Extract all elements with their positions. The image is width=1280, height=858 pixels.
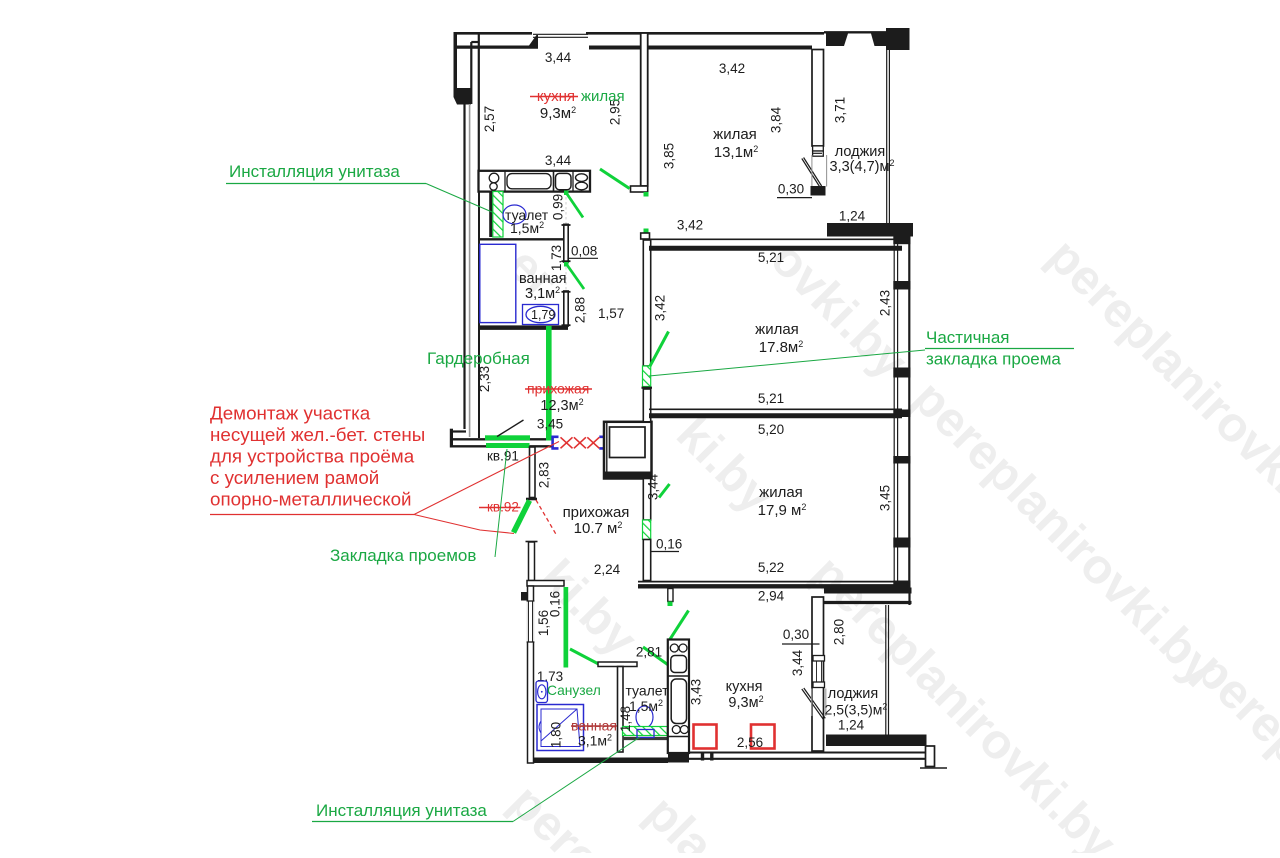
svg-text:1,57: 1,57 [598,306,624,321]
svg-text:3,3(4,7)м2: 3,3(4,7)м2 [830,158,895,175]
svg-text:Инсталляция унитаза: Инсталляция унитаза [229,162,400,181]
svg-text:лоджия: лоджия [828,686,878,702]
svg-text:9,3м2: 9,3м2 [728,694,763,711]
svg-text:3,42: 3,42 [719,61,745,76]
svg-text:Частичная: Частичная [926,328,1009,347]
svg-text:3,44: 3,44 [545,50,572,65]
svg-text:17.8м2: 17.8м2 [759,339,804,356]
svg-text:5,21: 5,21 [758,250,784,265]
svg-text:5,21: 5,21 [758,391,784,406]
svg-text:1,5м2: 1,5м2 [629,698,663,714]
svg-text:5,20: 5,20 [758,422,784,437]
svg-text:жилая: жилая [759,484,803,501]
svg-text:закладка проема: закладка проема [926,350,1061,369]
svg-text:несущей жел.-бет. стены: несущей жел.-бет. стены [210,424,425,445]
svg-text:Закладка проемов: Закладка проемов [330,546,476,565]
svg-text:2,24: 2,24 [594,562,621,577]
svg-text:2,33: 2,33 [477,366,492,392]
svg-text:17,9 м2: 17,9 м2 [758,502,807,519]
svg-text:0,16: 0,16 [656,537,682,552]
svg-text:1,73: 1,73 [549,245,564,271]
svg-text:кв.91: кв.91 [487,449,519,464]
svg-text:опорно-металлической: опорно-металлической [210,489,412,510]
svg-text:3,42: 3,42 [677,218,703,233]
svg-text:3,42: 3,42 [653,295,668,321]
svg-text:1,80: 1,80 [549,722,564,748]
svg-text:12,3м2: 12,3м2 [540,397,583,414]
svg-text:3,1м2: 3,1м2 [525,285,560,302]
svg-text:2,56: 2,56 [737,735,763,750]
svg-text:жилая: жилая [581,88,625,105]
svg-text:13,1м2: 13,1м2 [714,144,759,161]
svg-text:Демонтаж участка: Демонтаж участка [210,403,371,424]
svg-text:жилая: жилая [755,321,799,338]
svg-text:2,80: 2,80 [832,619,847,645]
svg-text:Гардеробная: Гардеробная [427,349,530,368]
svg-text:2,94: 2,94 [758,589,785,604]
svg-text:2,81: 2,81 [636,645,662,660]
svg-text:3,45: 3,45 [537,417,563,432]
svg-text:1,5м2: 1,5м2 [510,220,544,236]
svg-text:3,43: 3,43 [689,679,704,705]
svg-text:2,57: 2,57 [482,106,497,132]
svg-text:кухня: кухня [726,679,763,695]
svg-text:прихожая: прихожая [563,504,630,521]
svg-text:1,24: 1,24 [839,209,866,224]
svg-text:1,56: 1,56 [536,610,551,636]
svg-text:3,1м2: 3,1м2 [578,733,612,749]
svg-text:2,43: 2,43 [878,290,893,316]
svg-text:3,45: 3,45 [878,485,893,511]
svg-text:3,44: 3,44 [790,649,805,676]
svg-text:жилая: жилая [713,126,757,143]
svg-text:10.7 м2: 10.7 м2 [574,520,623,537]
svg-text:2,5(3,5)м2: 2,5(3,5)м2 [825,702,888,718]
svg-text:туалет: туалет [625,683,669,699]
svg-text:3,71: 3,71 [833,97,848,123]
svg-text:Санузел: Санузел [547,683,601,698]
svg-text:0,99: 0,99 [551,194,566,220]
svg-text:0,30: 0,30 [783,627,809,642]
svg-text:лоджия: лоджия [835,144,885,160]
svg-text:1,79: 1,79 [531,308,555,322]
svg-text:0,08: 0,08 [571,244,597,259]
svg-text:с усилением рамой: с усилением рамой [210,467,379,488]
svg-text:3,84: 3,84 [769,106,784,133]
svg-text:3,44: 3,44 [545,153,572,168]
svg-text:2,88: 2,88 [573,297,588,323]
svg-text:0,30: 0,30 [778,182,804,197]
svg-text:3,44: 3,44 [646,473,661,500]
svg-text:2,83: 2,83 [537,462,552,488]
svg-text:5,22: 5,22 [758,560,784,575]
svg-text:Инсталляция унитаза: Инсталляция унитаза [316,801,487,820]
svg-text:для устройства проёма: для устройства проёма [210,446,415,467]
svg-text:9,3м2: 9,3м2 [540,105,576,122]
svg-text:1,24: 1,24 [838,718,865,733]
svg-text:3,85: 3,85 [662,143,677,169]
